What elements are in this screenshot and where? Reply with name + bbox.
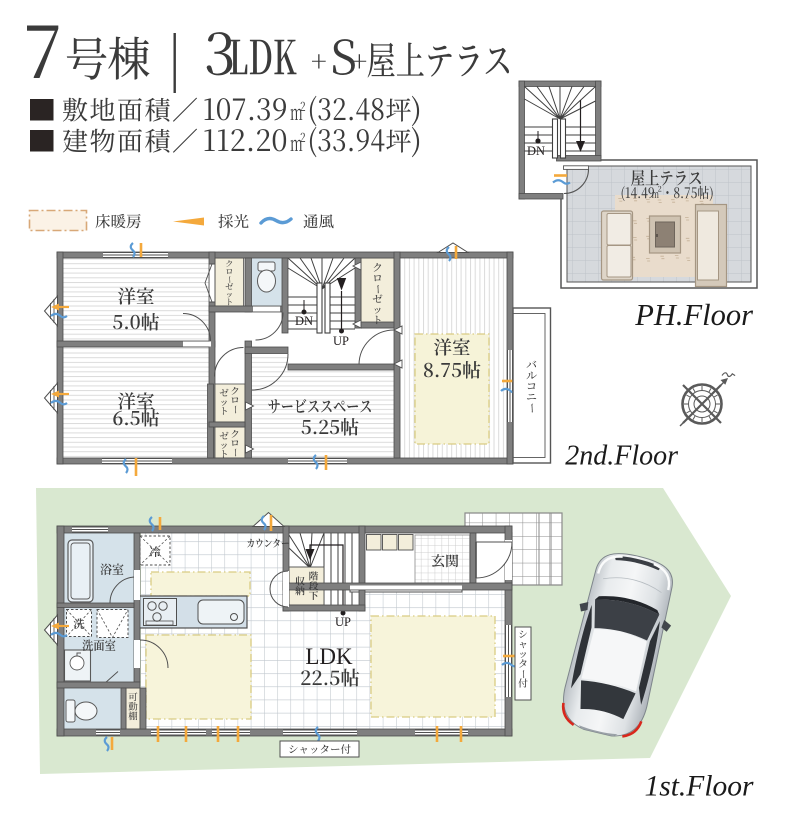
svg-text:1st.Floor: 1st.Floor [645,771,755,803]
svg-text:LDK: LDK [305,644,353,669]
svg-text:UP: UP [335,615,351,629]
svg-text:DN: DN [295,314,313,328]
svg-text:2nd.Floor: 2nd.Floor [565,441,678,472]
svg-text:PH.Floor: PH.Floor [634,298,753,332]
svg-text:DN: DN [527,144,545,158]
svg-text:UP: UP [333,334,349,348]
